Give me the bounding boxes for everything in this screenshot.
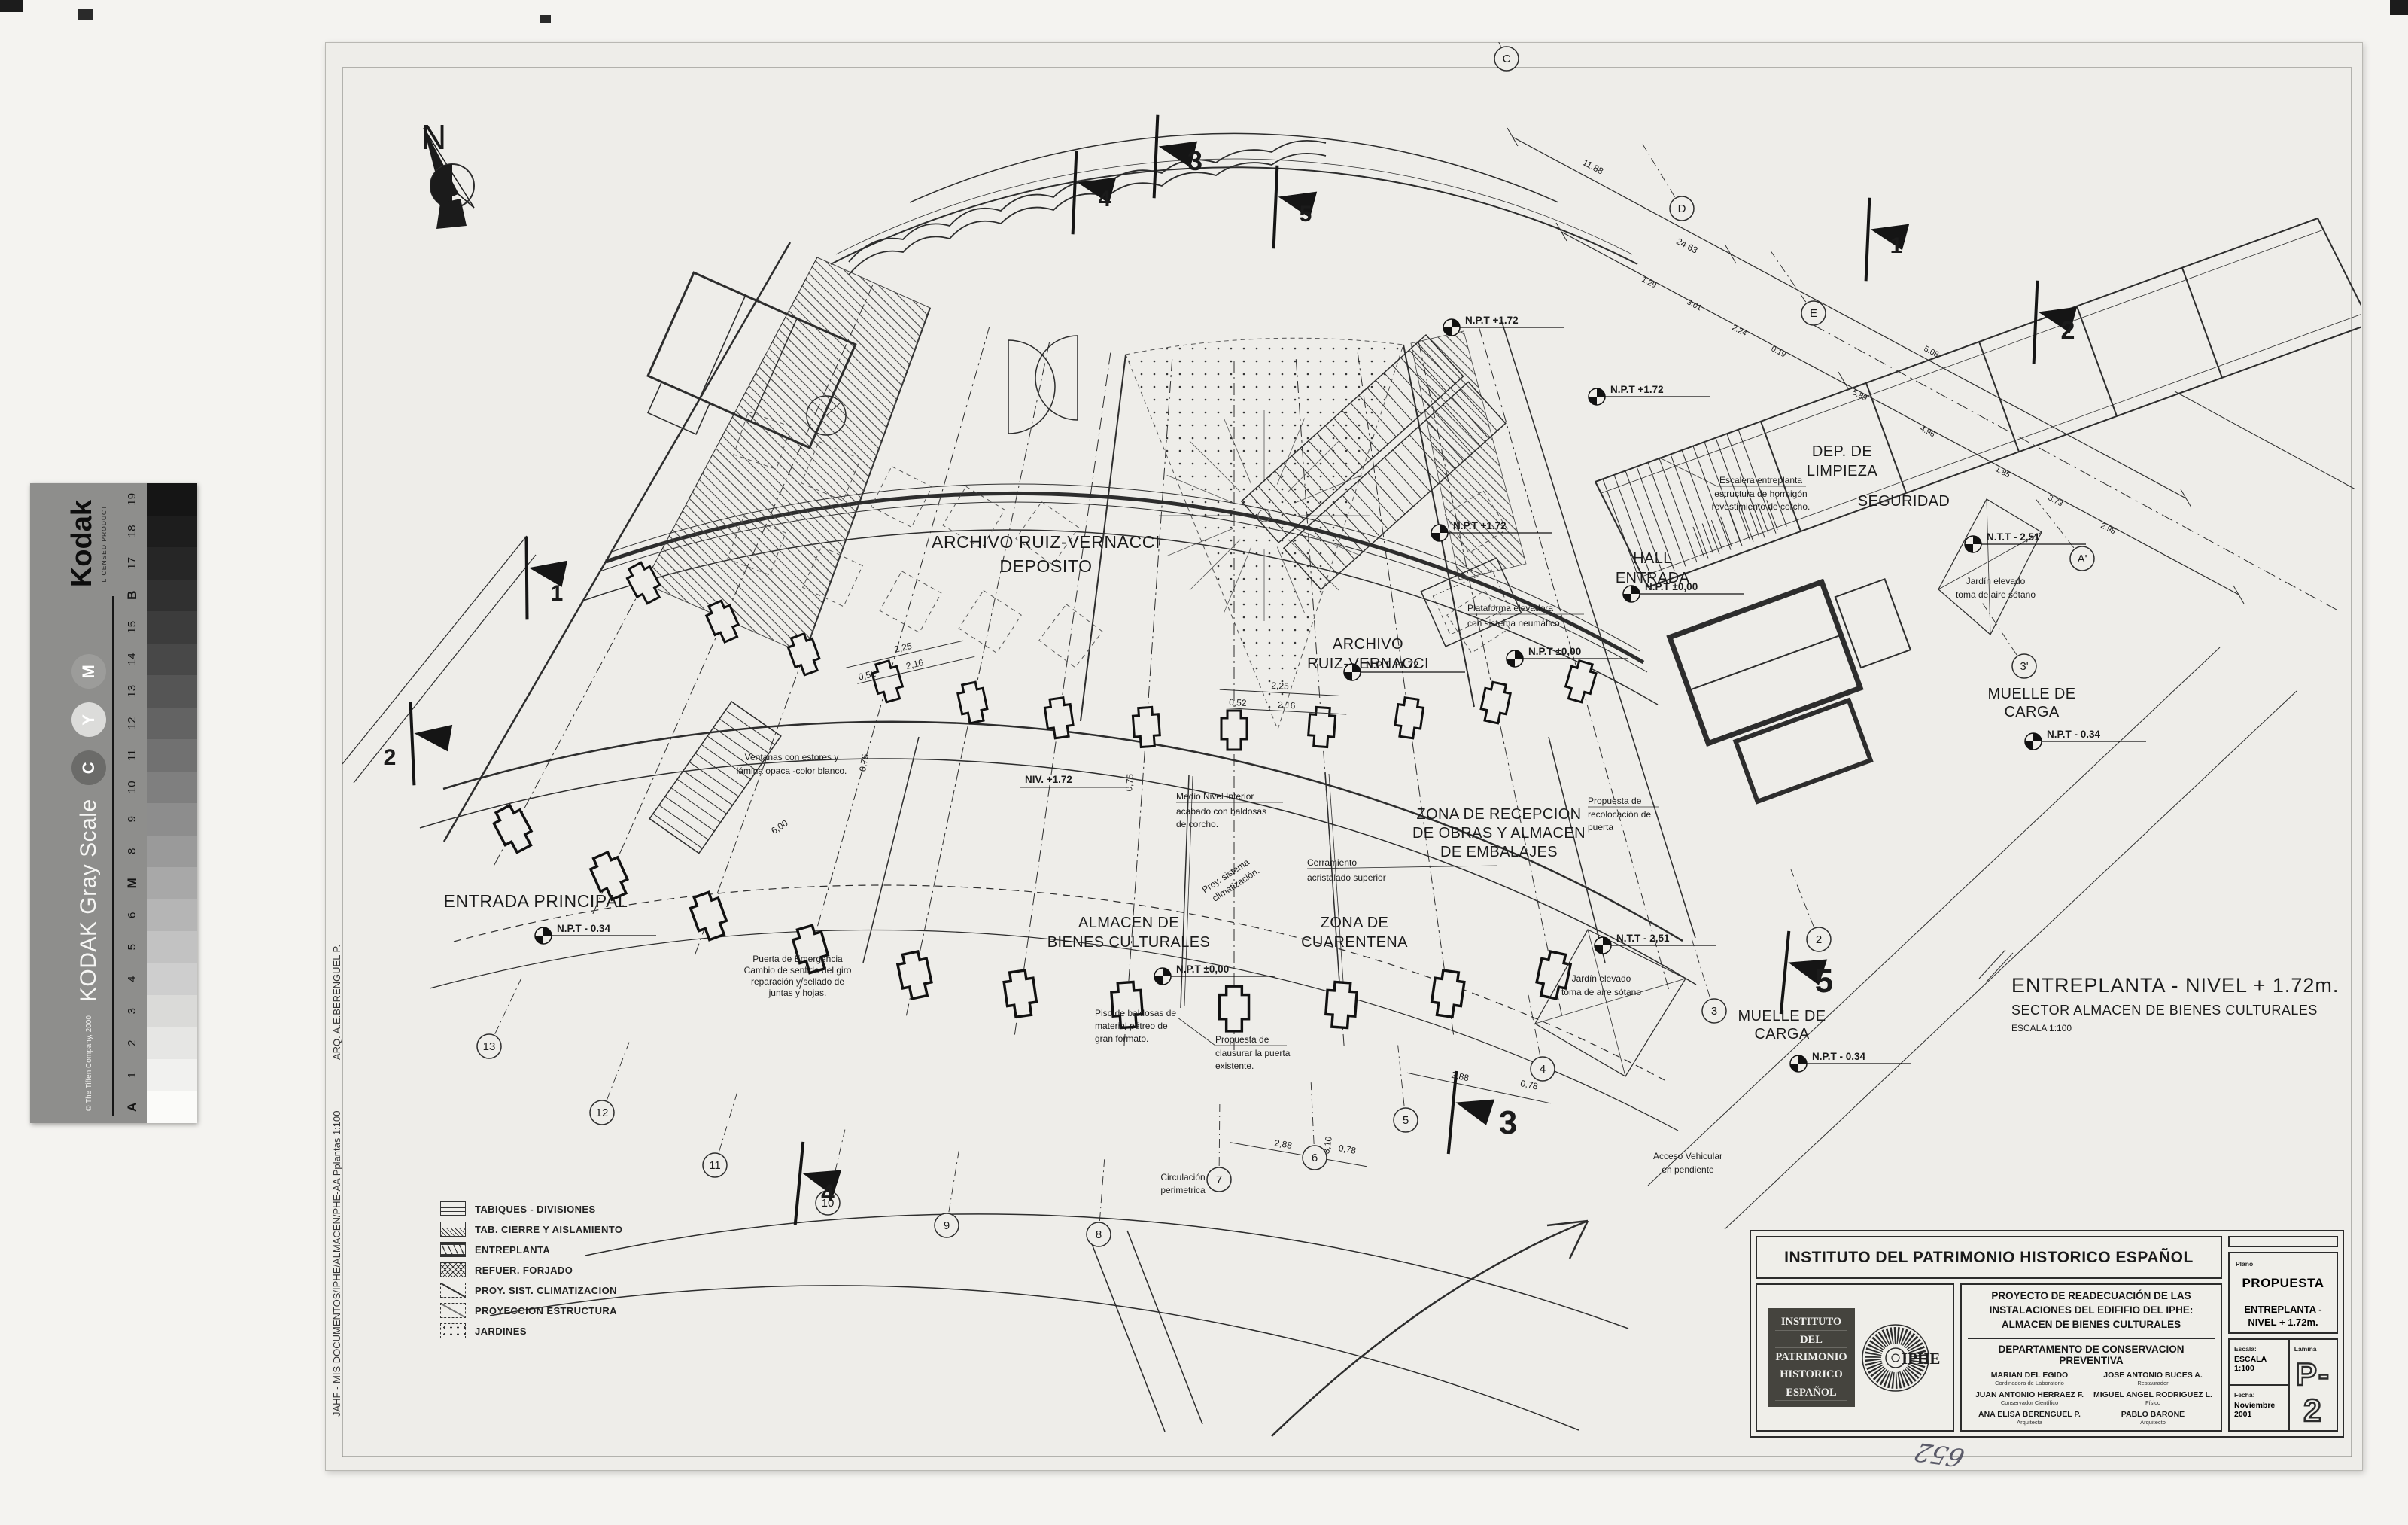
west-stair	[649, 702, 781, 854]
gray-patch	[147, 483, 197, 516]
scanner-corner-mark	[0, 0, 23, 12]
note-jardin-south: Jardín elevado toma de aire sótano	[1561, 973, 1641, 997]
gray-patch	[147, 516, 197, 548]
north-arrow: N	[421, 117, 474, 229]
raised-garden-south	[1535, 930, 1686, 1076]
scale-label: M	[119, 867, 146, 899]
section-flag-icon	[1431, 1071, 1499, 1162]
scale-label: 2	[119, 1027, 146, 1060]
gray-patch	[147, 1091, 197, 1124]
scale-label: A	[119, 1091, 146, 1124]
dim-185: 1.85	[1994, 464, 2012, 479]
svg-text:existente.: existente.	[1215, 1061, 1254, 1071]
svg-text:0,78: 0,78	[1519, 1078, 1539, 1092]
svg-text:acristalado superior: acristalado superior	[1307, 872, 1386, 883]
dim-019: 0.19	[1770, 344, 1788, 359]
svg-text:Circulación: Circulación	[1160, 1172, 1205, 1183]
legend-swatch-forjado	[440, 1262, 466, 1277]
kodak-gray-scale-strip: © The Tiffen Company, 2000 KODAK Gray Sc…	[30, 483, 197, 1123]
room-label-almacen: BIENES CULTURALES	[1047, 934, 1211, 951]
team-member: PABLO BARONEArquitecto	[2091, 1410, 2215, 1426]
legend: TABIQUES - DIVISIONESTAB. CIERRE Y AISLA…	[440, 1200, 622, 1342]
iphe-logo: INSTITUTODELPATRIMONIOHISTORICOESPAÑOL I…	[1756, 1283, 1954, 1432]
southeast-boundary	[1648, 647, 2297, 1229]
grid-bubble-label: 4	[1540, 1063, 1546, 1076]
scale-label: 3	[119, 995, 146, 1027]
plan-scale: ESCALA 1:100	[2011, 1023, 2072, 1033]
note-piso: Piso de baldosas de material pétreo de g…	[1095, 1008, 1176, 1044]
grid-bubble-label: 6	[1312, 1152, 1318, 1164]
room-label-recepcion: ZONA DE RECEPCION	[1416, 806, 1581, 823]
level-value: N.P.T - 0.34	[1812, 1051, 1866, 1062]
logo-word: DEL	[1775, 1332, 1847, 1348]
section-flag-number: 5	[1815, 963, 1833, 1000]
scale-label: 10	[119, 772, 146, 804]
site-boundary-wavy	[849, 141, 1326, 275]
legend-swatch-cierre	[440, 1222, 466, 1237]
legend-swatch-clima	[440, 1283, 466, 1298]
room-label-archivo: ARCHIVO	[1333, 636, 1403, 653]
svg-text:en pendiente: en pendiente	[1662, 1164, 1714, 1175]
section-flag-icon	[1848, 198, 1913, 288]
room-label-recepcion: DE EMBALAJES	[1440, 844, 1558, 860]
department-title: DEPARTAMENTO DE CONSERVACION PREVENTIVA	[1968, 1338, 2215, 1366]
note-medio-nivel: Medio Nivel Interior acabado con baldosa…	[1176, 791, 1283, 829]
gray-patch	[147, 708, 197, 740]
team-member: JUAN ANTONIO HERRAEZ F.Conservador Cient…	[1968, 1390, 2091, 1406]
gray-patch	[147, 803, 197, 836]
door-leafs	[1008, 336, 1078, 434]
plano-value: PROPUESTA	[2236, 1276, 2330, 1291]
kodak-copyright: © The Tiffen Company, 2000	[85, 1015, 93, 1111]
svg-text:recolocación de: recolocación de	[1588, 809, 1651, 820]
plan-title: ENTREPLANTA - NIVEL + 1.72m.	[2011, 974, 2339, 997]
svg-text:revestimiento de corcho.: revestimiento de corcho.	[1712, 501, 1811, 512]
note-plataforma: Plataforma elevadora con sistema neumáti…	[1467, 603, 1584, 629]
room-label-limpieza: LIMPIEZA	[1807, 463, 1878, 479]
magenta-patch-icon: M	[71, 654, 106, 689]
gray-patch	[147, 836, 197, 868]
svg-text:gran formato.: gran formato.	[1095, 1033, 1148, 1044]
room-label-hall: HALL	[1633, 550, 1672, 567]
level-value: N.P.T +1.72	[1465, 315, 1519, 326]
dim-075: 0,75	[857, 753, 871, 772]
svg-text:Jardín elevado: Jardín elevado	[1966, 576, 2026, 586]
legend-item: PROY. SIST. CLIMATIZACION	[440, 1281, 622, 1299]
level-value: N.P.T - 0.34	[2047, 729, 2101, 740]
level-value: N.T.T - 2,51	[1616, 933, 1670, 944]
dim-301: 3.01	[1686, 297, 1704, 312]
room-label-seguridad: SEGURIDAD	[1858, 493, 1950, 510]
room-label-entrada-principal: ENTRADA PRINCIPAL	[444, 891, 628, 911]
scale-label: B	[119, 580, 146, 612]
svg-text:Puerta de Emergencia: Puerta de Emergencia	[752, 954, 843, 964]
legend-label: JARDINES	[475, 1326, 527, 1337]
kodak-gray-patches	[147, 483, 197, 1123]
legend-item: TABIQUES - DIVISIONES	[440, 1200, 622, 1218]
room-label-archivo-deposito: DEPOSITO	[999, 556, 1092, 576]
plan-sector: SECTOR ALMACEN DE BIENES CULTURALES	[2011, 1003, 2318, 1018]
dimension-chain	[1507, 128, 2355, 610]
note-acceso: Acceso Vehicular en pendiente	[1653, 1151, 1722, 1175]
legend-item: ENTREPLANTA	[440, 1240, 622, 1259]
dim-group: 2,25 2,16 0,52	[844, 627, 975, 685]
kodak-scale-labels: A123456M89101112131415B171819	[119, 483, 146, 1123]
kodak-brand: Kodak LICENSED PRODUCT	[68, 495, 110, 587]
cyan-patch-icon: C	[71, 750, 106, 785]
svg-text:de corcho.: de corcho.	[1176, 819, 1218, 829]
section-flag-number: 1	[1890, 233, 1903, 258]
level-value: N.P.T ±0,00	[1176, 963, 1229, 975]
section-flag-number: 3	[1187, 145, 1202, 176]
level-value: N.P.T ±0,00	[1528, 646, 1581, 657]
note-proy-clima: Proy. sistema climatización.	[1200, 854, 1261, 906]
gray-patch	[147, 867, 197, 899]
kodak-title: KODAK Gray Scale	[76, 799, 102, 1002]
scale-label: 17	[119, 547, 146, 580]
scale-label: 1	[119, 1059, 146, 1091]
northeast-wing	[1595, 218, 2361, 587]
svg-text:con sistema neumático: con sistema neumático	[1467, 618, 1560, 629]
gray-patch	[147, 644, 197, 676]
section-flag-number: 2	[384, 745, 397, 770]
dim-295: 2.95	[2099, 521, 2118, 536]
room-label-muelle-south: CARGA	[1754, 1026, 1809, 1043]
margin-file-path: JAHF - MIS DOCUMENTOS/IPHE/ALMACEN/PHE-A…	[331, 1111, 342, 1417]
gray-patch	[147, 611, 197, 644]
svg-text:2,16: 2,16	[905, 657, 925, 671]
escala-cell: Escala: ESCALA 1:100	[2228, 1338, 2290, 1386]
grid-bubble-label: C	[1503, 53, 1511, 65]
legend-item: PROYECCION ESTRUCTURA	[440, 1301, 622, 1320]
scale-label: 8	[119, 836, 146, 868]
svg-text:puerta: puerta	[1588, 822, 1613, 833]
scale-label: 12	[119, 708, 146, 740]
dim-2463: 24.63	[1674, 236, 1699, 256]
sheet-number: P-2	[2294, 1356, 2332, 1429]
svg-text:2,25: 2,25	[1271, 680, 1289, 692]
project-title: PROYECTO DE READECUACIÓN DE LAS INSTALAC…	[1968, 1289, 2215, 1332]
room-label-almacen: ALMACEN DE	[1078, 915, 1179, 931]
level-value: N.P.T +1.72	[1610, 384, 1664, 395]
svg-text:Medio Nivel Interior: Medio Nivel Interior	[1176, 791, 1254, 802]
legend-label: TABIQUES - DIVISIONES	[475, 1204, 596, 1215]
columns	[490, 560, 1598, 1031]
room-label-recepcion: DE OBRAS Y ALMACEN	[1412, 825, 1586, 842]
registration-mark	[540, 15, 551, 23]
vehicle-ramp	[1090, 1221, 1588, 1436]
legend-label: ENTREPLANTA	[475, 1244, 550, 1256]
svg-text:Propuesta de: Propuesta de	[1215, 1034, 1269, 1045]
room-label-limpieza: DEP. DE	[1812, 443, 1872, 460]
grid-bubble-label: 12	[596, 1106, 609, 1119]
svg-text:estructura de hormigón: estructura de hormigón	[1714, 489, 1807, 499]
plano-cell: Plano PROPUESTA ENTREPLANTA - NIVEL + 1.…	[2228, 1252, 2338, 1334]
scale-label: 15	[119, 611, 146, 644]
scale-label: 13	[119, 675, 146, 708]
grid-bubble-label: 9	[944, 1219, 950, 1232]
logo-word: PATRIMONIO	[1775, 1350, 1847, 1365]
dim-496: 4.96	[1919, 424, 1937, 439]
legend-label: PROYECCION ESTRUCTURA	[475, 1305, 617, 1316]
note-recolocacion: Propuesta de recolocación de puerta	[1588, 796, 1659, 833]
grid-bubble-label: 11	[709, 1159, 721, 1172]
svg-text:perimetrica: perimetrica	[1160, 1185, 1206, 1195]
legend-swatch-estructura	[440, 1303, 466, 1318]
gray-patch	[147, 1059, 197, 1091]
svg-text:reparación y sellado de: reparación y sellado de	[751, 976, 844, 987]
legend-swatch-tabiques	[440, 1201, 466, 1216]
scale-label: 9	[119, 803, 146, 836]
legend-label: TAB. CIERRE Y AISLAMIENTO	[475, 1224, 622, 1235]
scale-label: 11	[119, 739, 146, 772]
svg-text:juntas y hojas.: juntas y hojas.	[768, 988, 827, 998]
gray-patch	[147, 580, 197, 612]
svg-text:toma de aire sótano: toma de aire sótano	[1561, 987, 1641, 997]
gray-patch	[147, 772, 197, 804]
dim-075: 0,75	[1123, 773, 1136, 792]
legend-label: PROY. SIST. CLIMATIZACION	[475, 1285, 617, 1296]
project-team: MARIAN DEL EGIDOCordinadora de Laborator…	[1968, 1371, 2215, 1426]
section-flag-icon	[397, 702, 455, 790]
gray-patch	[147, 995, 197, 1027]
registration-mark	[78, 9, 93, 20]
svg-text:Cambio de sentido del giro: Cambio de sentido del giro	[744, 965, 852, 976]
svg-text:2,88: 2,88	[1274, 1137, 1294, 1151]
service-rooms-thick-walls	[1670, 562, 1941, 811]
svg-text:2,88: 2,88	[1451, 1070, 1470, 1084]
grid-bubble-label: D	[1678, 202, 1686, 215]
grid-bubble-label: 8	[1096, 1228, 1102, 1241]
gray-patch	[147, 1027, 197, 1060]
iphe-seal-icon: IPHE	[1858, 1316, 1942, 1400]
note-circulacion: Circulación perimetrica	[1160, 1172, 1206, 1195]
scanner-corner-mark	[2390, 0, 2408, 15]
team-member: ANA ELISA BERENGUEL P.Arquitecta	[1968, 1410, 2091, 1426]
svg-text:2,16: 2,16	[1278, 699, 1296, 711]
svg-text:Piso de baldosas de: Piso de baldosas de	[1095, 1008, 1176, 1018]
section-flag-number: 4	[821, 1180, 835, 1207]
plan-subtitle: ENTREPLANTA - NIVEL + 1.72m. SECTOR ALMA…	[1979, 950, 2339, 1033]
scale-label: 19	[119, 483, 146, 516]
kodak-rule	[112, 596, 114, 1116]
section-flag-number: 2	[2061, 316, 2075, 345]
legend-swatch-jardines	[440, 1323, 466, 1338]
level-value: N.P.T - 0.34	[557, 923, 611, 934]
grid-bubble-label: A'	[2078, 552, 2087, 565]
svg-text:Propuesta de: Propuesta de	[1588, 796, 1642, 806]
plano-subtitle: ENTREPLANTA - NIVEL + 1.72m.	[2236, 1303, 2330, 1329]
fecha-cell: Fecha: Noviembre 2001	[2228, 1386, 2290, 1432]
scale-label: 4	[119, 963, 146, 996]
legend-swatch-entreplanta	[440, 1242, 466, 1257]
dim-1188: 11.88	[1581, 157, 1606, 176]
dim-group: 2,88 0,78	[1230, 1124, 1371, 1167]
section-flag-number: 4	[1099, 187, 1111, 212]
scanner-edge-line	[0, 29, 2408, 29]
svg-text:Jardín elevado: Jardín elevado	[1572, 973, 1631, 984]
institution-title: INSTITUTO DEL PATRIMONIO HISTORICO ESPAÑ…	[1756, 1236, 2222, 1279]
svg-text:toma de aire sótano: toma de aire sótano	[1956, 589, 2036, 600]
level-value: N.P.T ±0,00	[1645, 581, 1698, 592]
scale-label: 18	[119, 516, 146, 548]
svg-text:acabado con baldosas: acabado con baldosas	[1176, 806, 1266, 817]
lamina-cell: Lamina P-2	[2290, 1338, 2338, 1432]
section-flag-number: 5	[1300, 202, 1312, 227]
room-label-archivo-deposito: ARCHIVO RUIZ-VERNACCI	[932, 532, 1160, 552]
level-value: N.P.T +1.72	[1453, 520, 1507, 531]
dim-129: 1.29	[1640, 275, 1659, 290]
raised-garden-east	[1938, 499, 2042, 635]
logo-word: HISTORICO	[1775, 1367, 1847, 1383]
section-flag-number: 3	[1499, 1104, 1517, 1141]
svg-text:NIV. +1.72: NIV. +1.72	[1025, 774, 1072, 785]
team-member: MIGUEL ANGEL RODRIGUEZ L.Físico	[2091, 1390, 2215, 1406]
level-value: N.T.T - 2,51	[1987, 531, 2040, 543]
grid-bubble-label: 5	[1403, 1114, 1409, 1127]
scale-label: 14	[119, 644, 146, 676]
legend-item: JARDINES	[440, 1322, 622, 1340]
svg-text:Escalera entreplanta: Escalera entreplanta	[1719, 475, 1802, 486]
grid-bubble-label: 2	[1816, 933, 1822, 946]
grid-bubble-label: 3	[1711, 1005, 1717, 1018]
margin-architect: ARQ. A.E.BERENGUEL P.	[331, 945, 342, 1060]
svg-text:clausurar la puerta: clausurar la puerta	[1215, 1048, 1291, 1058]
room-label-muelle-east: CARGA	[2004, 704, 2059, 720]
logo-word: ESPAÑOL	[1775, 1385, 1847, 1401]
svg-text:lámina opaca -color blanco.: lámina opaca -color blanco.	[737, 766, 847, 776]
logo-word: INSTITUTO	[1775, 1314, 1847, 1330]
dim-373: 3.73	[2047, 493, 2065, 508]
room-label-cuarentena: ZONA DE	[1321, 915, 1389, 931]
scale-label: 5	[119, 931, 146, 963]
legend-item: TAB. CIERRE Y AISLAMIENTO	[440, 1220, 622, 1238]
svg-text:material pétreo de: material pétreo de	[1095, 1021, 1168, 1031]
grid-bubble-label: 13	[483, 1040, 496, 1053]
gray-patch	[147, 739, 197, 772]
note-puerta-emergencia: Puerta de Emergencia Cambio de sentido d…	[744, 954, 852, 998]
note-jardin-east: Jardín elevado toma de aire sótano	[1956, 576, 2036, 600]
level-value: N.P.T +1.72	[1366, 659, 1419, 671]
gray-patch	[147, 675, 197, 708]
svg-text:Ventanas con estores y: Ventanas con estores y	[745, 752, 839, 762]
grid-bubble-label: 7	[1216, 1173, 1222, 1186]
gray-patch	[147, 899, 197, 932]
title-block: INSTITUTO DEL PATRIMONIO HISTORICO ESPAÑ…	[1750, 1230, 2344, 1438]
svg-text:0,52: 0,52	[1229, 697, 1247, 708]
refuerzo-forjado-hatch	[644, 257, 930, 654]
grid-bubble-label: 3'	[2020, 660, 2028, 673]
gray-patch	[147, 963, 197, 996]
svg-text:IPHE: IPHE	[1902, 1350, 1940, 1368]
svg-text:Plataforma elevadora: Plataforma elevadora	[1467, 603, 1553, 613]
iphe-logo-words: INSTITUTODELPATRIMONIOHISTORICOESPAÑOL	[1768, 1308, 1854, 1406]
grid-bubble-label: E	[1810, 307, 1817, 320]
gray-patch	[147, 547, 197, 580]
scanned-architectural-plan: 11.88 24.63 1.29 3.01 2.24 0.19 5.89 4.9…	[0, 0, 2408, 1525]
legend-item: REFUER. FORJADO	[440, 1261, 622, 1279]
scale-label: 6	[119, 899, 146, 932]
svg-text:Cerramiento: Cerramiento	[1307, 857, 1357, 868]
team-member: JOSE ANTONIO BUCES A.Restaurador	[2091, 1371, 2215, 1387]
room-label-muelle-east: MUELLE DE	[1988, 686, 2076, 702]
title-block-empty-cell	[2228, 1236, 2338, 1247]
section-flag-number: 1	[551, 581, 564, 606]
team-member: MARIAN DEL EGIDOCordinadora de Laborator…	[1968, 1371, 2091, 1387]
gray-patch	[147, 931, 197, 963]
svg-text:Acceso Vehicular: Acceso Vehicular	[1653, 1151, 1722, 1161]
legend-label: REFUER. FORJADO	[475, 1265, 573, 1276]
svg-text:0,78: 0,78	[1338, 1143, 1358, 1156]
dim-600: 6,00	[769, 817, 789, 836]
yellow-patch-icon: Y	[71, 702, 106, 737]
room-label-cuarentena: CUARENTENA	[1301, 934, 1408, 951]
dim-224: 2.24	[1731, 323, 1749, 338]
